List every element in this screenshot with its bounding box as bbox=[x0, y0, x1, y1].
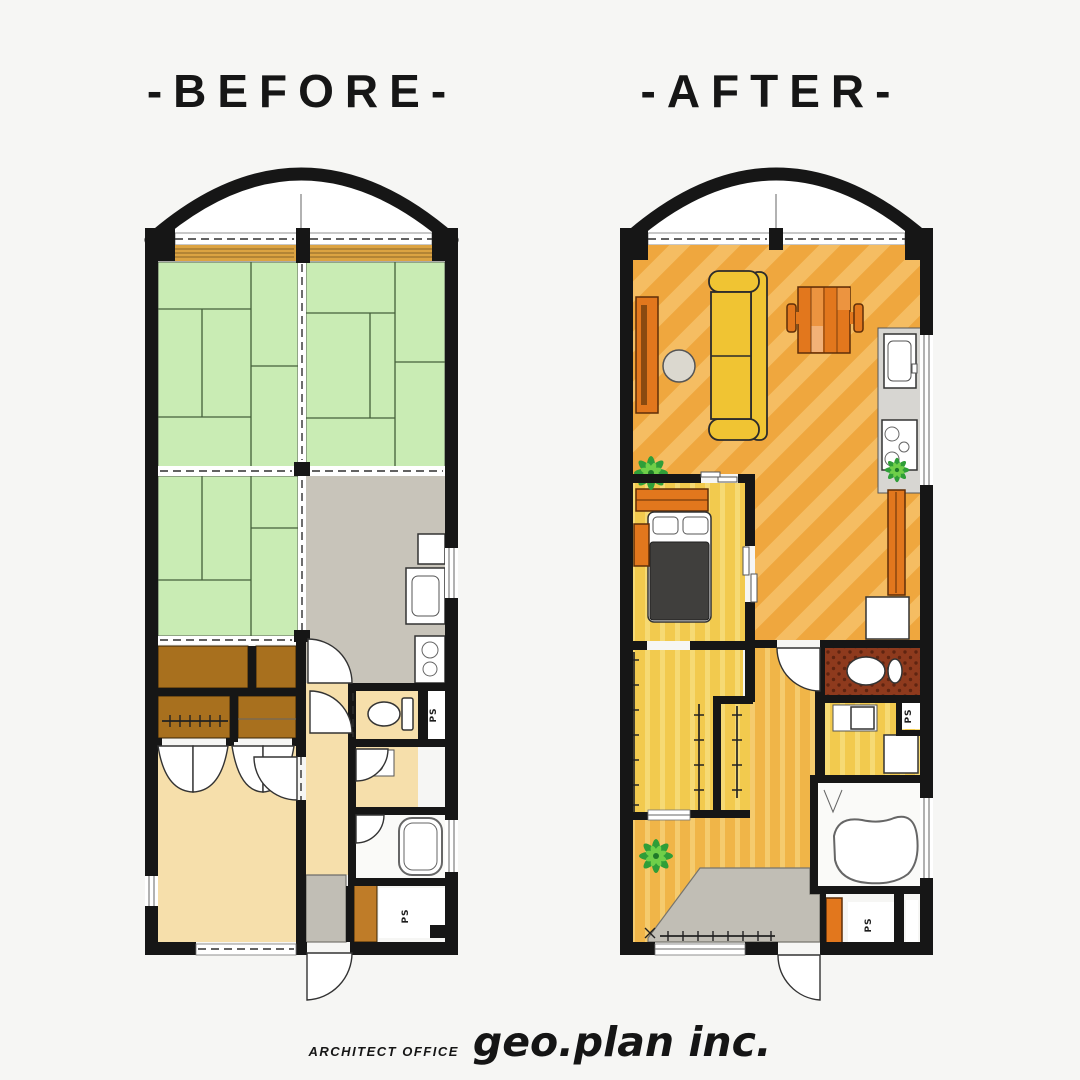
before-floor-plan: PS PS bbox=[145, 174, 458, 1001]
before-entry-genkan bbox=[306, 875, 346, 942]
architect-office-label: ARCHITECT OFFICE bbox=[309, 1044, 459, 1059]
before-closet-2 bbox=[256, 646, 296, 688]
before-ps-label-2: PS bbox=[401, 908, 411, 923]
before-closet-1 bbox=[158, 646, 248, 688]
after-pillow bbox=[683, 517, 708, 534]
plant-icon bbox=[639, 839, 673, 873]
after-tv-board bbox=[636, 297, 658, 413]
before-shoe-cabinet bbox=[354, 885, 377, 942]
after-floor-plan: PS PS bbox=[620, 174, 933, 1001]
before-entrance-door bbox=[307, 953, 352, 1000]
after-duvet bbox=[650, 542, 709, 620]
after-entrance-door bbox=[778, 955, 820, 1000]
after-kitchen-sink bbox=[884, 334, 917, 388]
before-stove bbox=[415, 636, 445, 683]
after-washbasin bbox=[833, 705, 877, 731]
before-bathtub bbox=[399, 818, 442, 875]
before-closet-3 bbox=[158, 696, 230, 738]
after-bathtub bbox=[834, 817, 918, 884]
after-ps-label-1: PS bbox=[904, 708, 914, 723]
before-closet-4 bbox=[238, 696, 296, 738]
after-washing-machine bbox=[884, 735, 918, 773]
after-toilet bbox=[847, 657, 902, 685]
company-name: geo.plan inc. bbox=[473, 1018, 772, 1066]
footer-branding: ARCHITECT OFFICE geo.plan inc. bbox=[0, 1018, 1080, 1066]
after-ps-label-2: PS bbox=[864, 917, 874, 932]
plant-icon bbox=[634, 456, 668, 490]
after-bedside-cabinet bbox=[634, 524, 649, 566]
before-tatami-room-3 bbox=[158, 476, 298, 636]
after-open-closet bbox=[721, 704, 750, 812]
before-closets bbox=[158, 646, 304, 742]
before-ps-label-1: PS bbox=[429, 707, 439, 722]
after-refrigerator bbox=[866, 597, 909, 639]
before-after-floorplan-poster: -BEFORE- -AFTER- bbox=[0, 0, 1080, 1080]
after-pantry-shelf bbox=[888, 490, 905, 595]
after-pillow bbox=[653, 517, 678, 534]
plant-icon bbox=[885, 458, 909, 482]
after-side-table bbox=[663, 350, 695, 382]
floorplan-drawing: PS PS bbox=[0, 0, 1080, 1080]
after-entry-cabinet bbox=[826, 898, 842, 946]
after-sofa bbox=[709, 271, 767, 440]
before-tatami-room-2 bbox=[306, 262, 445, 468]
before-tatami-room-1 bbox=[158, 262, 298, 468]
